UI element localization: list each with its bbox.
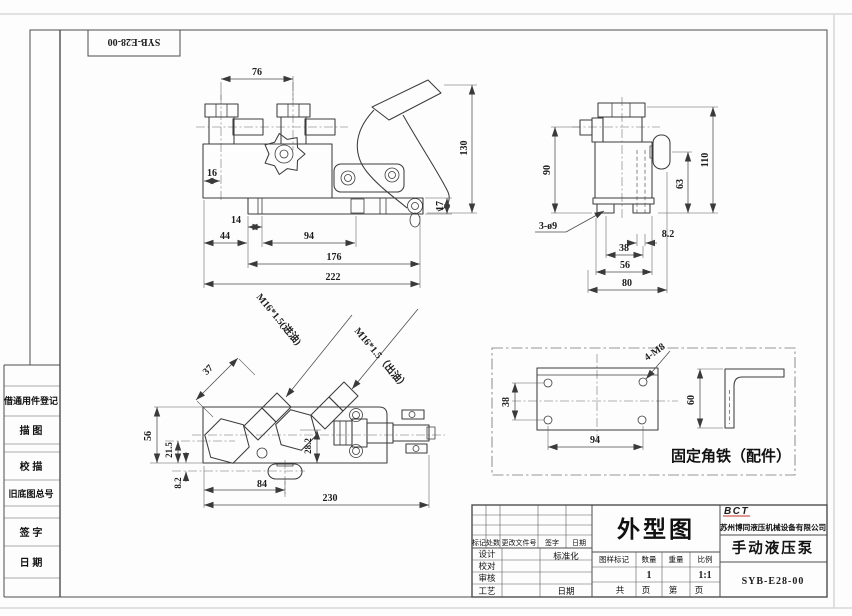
dim-44: 44	[220, 231, 230, 242]
dim-84: 84	[257, 479, 267, 490]
front-view-dimensions: 76 16 14 44 94 176 222 17 130	[204, 67, 477, 288]
margin-date-label: 日 期	[20, 556, 43, 569]
dim-56-top: 56	[143, 431, 154, 441]
rev-sign-label: 签字	[545, 538, 559, 547]
label-inlet-port: M16*1.5(进油)	[254, 291, 305, 348]
label-outlet-port: M16*1.5（出油）	[352, 325, 411, 392]
rev-date-label: 日期	[572, 539, 586, 547]
dim-8-2-top: 8.2	[173, 477, 183, 489]
dim-8-2-side: 8.2	[662, 229, 675, 240]
side-knob	[653, 135, 670, 169]
drawing-sheet: SYB-E28-00 借通用件登记 描 图 校 描 旧底图总号 签 字 日 期	[0, 0, 852, 616]
hand-knob	[265, 134, 305, 175]
role-design-label: 设计	[478, 549, 496, 559]
pages-page1-label: 页	[642, 585, 651, 595]
bracket-dimensions: 38 94 4-M8 60	[501, 341, 723, 450]
bracket-plate	[537, 368, 658, 430]
dim-38-side: 38	[619, 243, 629, 254]
role-process-label: 工艺	[478, 586, 495, 596]
bracket-caption: 固定角铁（配件）	[671, 447, 791, 465]
pages-total-label: 共	[616, 585, 625, 595]
dim-94: 94	[304, 231, 314, 242]
margin-check-tracing-label: 校 描	[20, 460, 43, 473]
role-audit-label: 审核	[478, 573, 496, 583]
top-view-dimensions: M16*1.5(进油) M16*1.5（出油） 37 56 21.5 8.2 2…	[143, 291, 429, 508]
piston-assembly	[334, 410, 435, 453]
dim-230: 230	[323, 493, 338, 504]
quantity-value: 1	[647, 570, 652, 581]
dim-17: 17	[435, 201, 446, 211]
dim-21-5: 21.5	[164, 442, 174, 458]
dim-14: 14	[231, 215, 241, 226]
pages-no-label: 第	[669, 585, 678, 595]
grid-drawing-mark-label: 图样标记	[599, 554, 629, 564]
dim-38-bracket: 38	[501, 397, 512, 407]
paper-edges	[0, 14, 852, 608]
dim-56-side: 56	[620, 260, 630, 271]
dim-16: 16	[207, 168, 217, 179]
drawing-canvas: SYB-E28-00 借通用件登记 描 图 校 描 旧底图总号 签 字 日 期	[0, 0, 852, 616]
title-block: 标记 处数 更改文件号 签字 日期 设计 校对 审核 工艺 标准化 日期 外型图…	[472, 505, 827, 597]
margin-old-drawing-label: 旧底图总号	[8, 488, 53, 499]
margin-strip: 借通用件登记 描 图 校 描 旧底图总号 签 字 日 期	[3, 365, 60, 597]
dim-110: 110	[700, 153, 711, 167]
grid-weight-label: 重量	[669, 555, 684, 564]
bracket-view: 38 94 4-M8 60 固定角铁（配件）	[492, 341, 795, 475]
dim-222: 222	[326, 272, 341, 283]
side-view: 90 110 63 3-ø9 8.2 38 56	[535, 97, 718, 293]
part-number-rotated: SYB-E28-00	[108, 36, 161, 47]
dim-90: 90	[542, 165, 553, 175]
drawing-title: 外型图	[617, 516, 695, 542]
dim-94-bracket: 94	[590, 435, 600, 446]
rev-changedoc-label: 更改文件号	[502, 538, 537, 547]
pages-page2-label: 页	[695, 585, 704, 595]
margin-register-label: 借通用件登记	[3, 395, 58, 406]
dim-76: 76	[252, 67, 262, 78]
bracket-side-profile	[725, 369, 784, 428]
company-name: 苏州博同液压机械设备有限公司	[720, 522, 826, 532]
rev-mark-label: 标记	[472, 538, 486, 547]
company-logo: BCT	[724, 506, 749, 517]
margin-signature-label: 签 字	[19, 526, 43, 539]
dim-176: 176	[327, 252, 342, 263]
dim-130: 130	[459, 141, 470, 156]
label-4-m8: 4-M8	[642, 341, 667, 363]
role-standard-label: 标准化	[553, 551, 579, 561]
side-view-dimensions: 90 110 63 3-ø9 8.2 38 56	[535, 107, 718, 293]
scale-value: 1:1	[698, 570, 711, 581]
margin-tracing-label: 描 图	[20, 424, 43, 437]
product-name: 手动液压泵	[732, 539, 815, 557]
top-view: M16*1.5(进油) M16*1.5（出油） 37 56 21.5 8.2 2…	[143, 291, 445, 508]
dim-37: 37	[201, 363, 216, 378]
drawing-number: SYB-E28-00	[742, 576, 805, 587]
dim-63: 63	[675, 179, 686, 189]
front-view: 76 16 14 44 94 176 222 17 130	[196, 67, 477, 288]
grid-quantity-label: 数量	[642, 554, 657, 564]
dim-28-2: 28.2	[303, 438, 313, 454]
label-3-dia9: 3-ø9	[539, 221, 557, 232]
rev-count-label: 处数	[486, 538, 500, 547]
dim-60: 60	[686, 395, 697, 405]
dim-80: 80	[622, 278, 632, 289]
sheet-frame	[30, 30, 827, 597]
role-proof-label: 校对	[478, 561, 496, 571]
role-date-label: 日期	[557, 586, 574, 596]
grid-scale-label: 比例	[698, 554, 713, 564]
